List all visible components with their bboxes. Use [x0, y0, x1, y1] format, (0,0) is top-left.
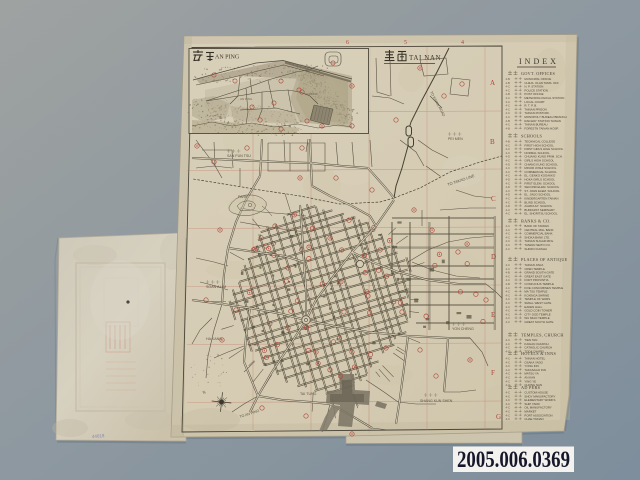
svg-text:HA KANG: HA KANG	[206, 337, 222, 341]
svg-text:PLACES OF ANTIQUE: PLACES OF ANTIQUE	[521, 257, 568, 262]
svg-text:F: F	[491, 369, 495, 377]
svg-text:INDEX: INDEX	[519, 57, 559, 66]
svg-text:4-C: 4-C	[506, 212, 511, 216]
svg-text:FORESTN TAINAN HOSP.: FORESTN TAINAN HOSP.	[524, 126, 559, 130]
svg-text:4-C: 4-C	[506, 247, 511, 251]
svg-text:C: C	[491, 195, 496, 203]
svg-text:CHAE TAINAN: CHAE TAINAN	[524, 417, 543, 421]
svg-text:G: G	[496, 413, 501, 421]
svg-text:PEI MEN: PEI MEN	[448, 137, 463, 141]
svg-text:SAN FUN TSU: SAN FUN TSU	[227, 154, 251, 158]
svg-text:A: A	[490, 79, 495, 87]
svg-text:SOAN A LIM: SOAN A LIM	[206, 285, 226, 289]
svg-text:PARK: PARK	[238, 195, 248, 199]
svg-text:SCHOOLS: SCHOOLS	[521, 134, 543, 139]
svg-text:AD PERS: AD PERS	[521, 385, 541, 390]
svg-text:TAI NAN: TAI NAN	[409, 54, 441, 62]
svg-text:4: 4	[461, 40, 464, 46]
svg-text:SHANG KUN SHEN: SHANG KUN SHEN	[420, 399, 453, 403]
svg-text:GOVT. OFFICES: GOVT. OFFICES	[521, 71, 555, 76]
svg-text:BANKS & CO.: BANKS & CO.	[521, 219, 551, 224]
svg-text:4-C: 4-C	[506, 417, 511, 421]
svg-text:AN PING: AN PING	[215, 55, 240, 61]
svg-text:6: 6	[346, 40, 349, 46]
svg-text:EL. SHORITSU SCHOOL: EL. SHORITSU SCHOOL	[524, 212, 557, 216]
svg-text:AN PING: AN PING	[240, 97, 253, 101]
svg-text:5: 5	[404, 40, 407, 46]
svg-text:4-C: 4-C	[506, 349, 511, 353]
svg-text:SHINKO KAISHA: SHINKO KAISHA	[524, 247, 547, 251]
svg-text:GREAT SOUTH GATE: GREAT SOUTH GATE	[524, 320, 553, 324]
svg-text:B: B	[490, 138, 495, 146]
svg-text:4-C: 4-C	[506, 383, 511, 387]
svg-text:HOTELS & INNS: HOTELS & INNS	[521, 351, 556, 356]
svg-text:YON CHENG: YON CHENG	[452, 327, 474, 331]
svg-text:HARBOR: HARBOR	[305, 92, 317, 96]
svg-text:4-C: 4-C	[506, 320, 511, 324]
svg-text:2005.006.0369: 2005.006.0369	[457, 447, 570, 473]
svg-text:TAI TUNG: TAI TUNG	[300, 392, 317, 396]
svg-text:4-B: 4-B	[506, 126, 510, 130]
svg-text:44018: 44018	[92, 433, 105, 439]
svg-text:E: E	[491, 311, 495, 319]
